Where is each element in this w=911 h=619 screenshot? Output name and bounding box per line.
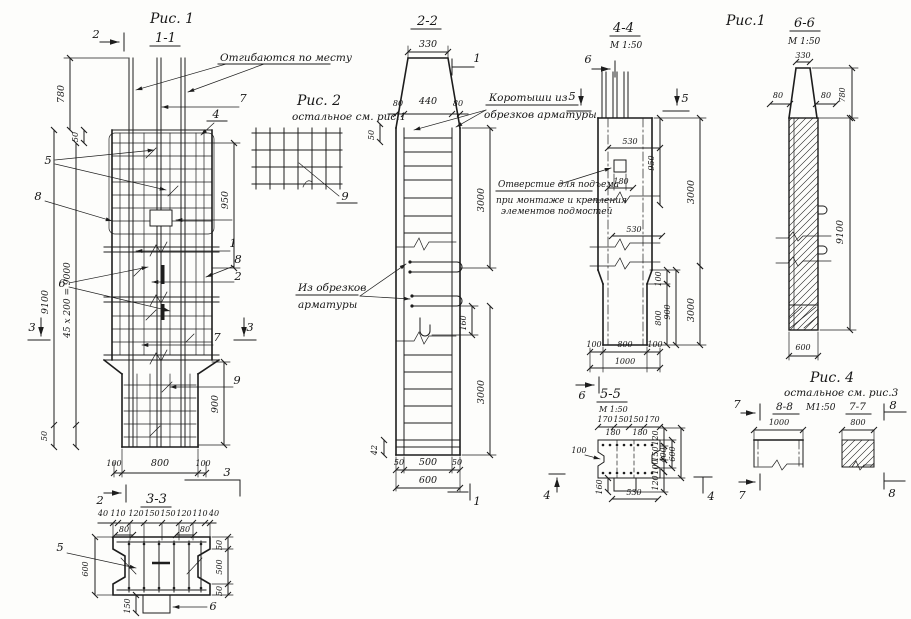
sec66-scale: М 1:50	[787, 37, 821, 47]
sec33-callout-6: 6	[209, 599, 216, 613]
sec66-title: 6-6	[794, 16, 815, 31]
sec22-dim-50r: 50	[452, 458, 462, 467]
sec44-dim-800v: 800	[654, 310, 663, 325]
sec44-dim-3000a: 3000	[686, 180, 697, 204]
sec33-dim-500: 500	[215, 559, 224, 574]
sec66-dim-780: 780	[838, 87, 847, 102]
callout-2-right: 2	[233, 269, 241, 283]
callout-1: 1	[229, 236, 236, 250]
sec22-dim-600: 600	[419, 475, 437, 486]
marker-8-top-label: 8	[889, 398, 896, 412]
drawing-canvas: Рис. 1 1-1 2 Отгибаются по месту	[0, 0, 911, 619]
note-bend-text: Отгибаются по месту	[220, 52, 353, 64]
fig2-callout-9: 9	[341, 189, 348, 203]
marker-7-bottom-label: 7	[738, 488, 746, 502]
sec33-dim-150: 150	[123, 598, 132, 613]
blueprint-page: Рис. 1 1-1 2 Отгибаются по месту	[0, 0, 911, 619]
sec66-dim-600: 600	[795, 343, 810, 352]
marker-4-right-label: 4	[706, 489, 714, 503]
lifting-hole-44	[614, 160, 626, 172]
marker-6-top-label: 6	[584, 52, 591, 66]
callout-6: 6	[58, 276, 65, 290]
sec22-dim-80r: 80	[453, 99, 463, 108]
note-hole-line2: при монтаже и крепления	[496, 196, 627, 206]
fig1-title: Рис. 1	[149, 11, 194, 27]
sec66-dim-330: 330	[795, 51, 810, 60]
sec44-dim-530a: 530	[622, 137, 637, 146]
sec22-dim-50-side: 50	[367, 130, 376, 140]
sec33-title: 3-3	[146, 492, 167, 507]
sec55-dim-150r: 150	[628, 415, 643, 424]
callout-3-bottom: 3	[223, 465, 230, 479]
sec44-dim-100c: 100	[654, 271, 663, 286]
fig2-subtitle: остальное см. рис.1	[292, 111, 406, 123]
dim-900: 900	[210, 395, 221, 413]
sec55-dim-180l: 180	[605, 428, 620, 437]
note-obrezki-line1: Из обрезков	[297, 282, 366, 294]
sec22-title: 2-2	[416, 14, 438, 29]
marker-5-left-label: 5	[568, 89, 575, 103]
sec22-dim-440: 440	[418, 96, 437, 107]
sec22-dim-42: 42	[370, 445, 379, 456]
sec55-scale: М 1:50	[598, 405, 628, 414]
sec44-dim-800: 800	[617, 340, 632, 349]
dim-9100: 9100	[40, 290, 51, 314]
dim-800: 800	[151, 458, 169, 469]
marker-1-bottom-label: 1	[473, 494, 480, 508]
sec44-scale: М 1:50	[609, 41, 643, 51]
callout-7-mid: 7	[213, 330, 221, 344]
sec22-dim-500: 500	[419, 457, 437, 468]
sec22-dim-3000a: 3000	[476, 188, 487, 212]
sec22-dim-50l: 50	[394, 458, 404, 467]
sec55-dim-180r: 180	[632, 428, 647, 437]
dim-780: 780	[56, 85, 67, 103]
sec55-dim-170r: 170	[644, 415, 659, 424]
callout-8-left: 8	[34, 189, 41, 203]
sec44-dim-1000: 1000	[615, 357, 635, 366]
callout-9: 9	[233, 373, 240, 387]
fig4-dim-1000: 1000	[769, 418, 789, 427]
marker-7-top-label: 7	[733, 397, 741, 411]
sec33-dim-600: 600	[81, 561, 90, 576]
fig1-header-label: Рис.1	[725, 13, 766, 29]
fig4-dim-800: 800	[850, 418, 865, 427]
dim-150b: 150	[160, 509, 175, 518]
sec55-dim-600: 600	[668, 446, 677, 461]
sec44-dim-100r: 100	[647, 340, 662, 349]
sec44-dim-100l: 100	[586, 340, 601, 349]
note-hole-line1: Отверстие для подъема	[498, 180, 619, 190]
dim-110a: 110	[110, 509, 125, 518]
sec66-dim-80l: 80	[773, 91, 783, 100]
marker-8-bottom-label: 8	[888, 486, 895, 500]
callout-7-top: 7	[239, 91, 247, 105]
marker-6-bottom-label: 6	[578, 388, 585, 402]
sec55-dim-160: 160	[595, 479, 604, 494]
sec22-dim-160: 160	[459, 315, 468, 330]
sec33-callout-5: 5	[56, 540, 63, 554]
dim-120a: 120	[128, 509, 143, 518]
dim-40a: 40	[97, 509, 108, 518]
sec44-dim-950: 950	[647, 155, 656, 170]
sec33-dim-50b: 50	[215, 586, 224, 596]
dim-120b: 120	[176, 509, 191, 518]
sec55-dim-530: 530	[626, 488, 641, 497]
dim-45x200: 45 х 200 = 9000	[63, 262, 73, 339]
sec44-dim-530b: 530	[626, 225, 641, 234]
dim-950: 950	[220, 191, 231, 209]
marker-2-top-label: 2	[91, 27, 99, 41]
sec44-dim-3000b: 3000	[686, 298, 697, 322]
callout-8-right: 8	[234, 252, 241, 266]
section-marker-3-left: 3	[28, 320, 35, 334]
sec55-dim-170l: 170	[597, 415, 612, 424]
sec55-dim-120t: 120	[651, 430, 660, 445]
dim-50-bottom: 50	[40, 431, 49, 441]
callout-4-top: 4	[211, 107, 219, 121]
sec55-dim-150l: 150	[613, 415, 628, 424]
lifting-hole	[150, 210, 172, 226]
sec55-dim-400: 400	[659, 447, 668, 463]
sec22-dim-80l: 80	[393, 99, 403, 108]
sec66-dim-9100: 9100	[835, 220, 846, 244]
marker-1-top-label: 1	[473, 51, 480, 65]
marker-5-right-label: 5	[681, 91, 688, 105]
sec66-dim-80r: 80	[821, 91, 831, 100]
sec22-dim-3000b: 3000	[476, 380, 487, 404]
fig4-subtitle: остальное см. рис.3	[784, 387, 899, 399]
marker-4-left-label: 4	[542, 488, 550, 502]
dim-100-left: 100	[106, 459, 121, 468]
fig4-scale: М1:50	[805, 403, 836, 413]
note-korotyshi-line1: Коротыши из	[488, 92, 568, 104]
sec22-dim-330: 330	[419, 39, 437, 50]
sec55-title: 5-5	[600, 387, 621, 402]
fig4-s77-label: 7-7	[849, 401, 866, 413]
sec44-dim-900: 900	[663, 304, 672, 319]
dim-150a: 150	[144, 509, 159, 518]
fig2-title: Рис. 2	[296, 93, 341, 109]
callout-5: 5	[44, 153, 51, 167]
note-hole-line3: элементов подмостей	[501, 207, 613, 217]
dim-100-right: 100	[195, 459, 210, 468]
sec55-dim-100: 100	[571, 446, 586, 455]
sec55-dim-120b: 120	[651, 475, 660, 490]
note-obrezki-line2: арматуры	[298, 299, 357, 311]
sec44-dim-180: 180	[613, 177, 628, 186]
fig1-section-label: 1-1	[155, 31, 176, 46]
fig4-s88-label: 8-8	[776, 401, 793, 413]
dim-40b: 40	[208, 509, 219, 518]
dim-80-440-80: 80 440 80	[388, 96, 468, 117]
sec44-title: 4-4	[612, 21, 634, 36]
sec33-dim-50t: 50	[215, 540, 224, 550]
sec33-dim-80r: 80	[180, 525, 190, 534]
section-marker-3-right: 3	[246, 320, 253, 334]
section-marker-2-bottom: 2	[95, 493, 103, 507]
dim-110b: 110	[192, 509, 207, 518]
fig4-title: Рис. 4	[809, 370, 854, 386]
sec33-dim-80l: 80	[119, 525, 129, 534]
dim-50-top: 50	[71, 132, 80, 142]
